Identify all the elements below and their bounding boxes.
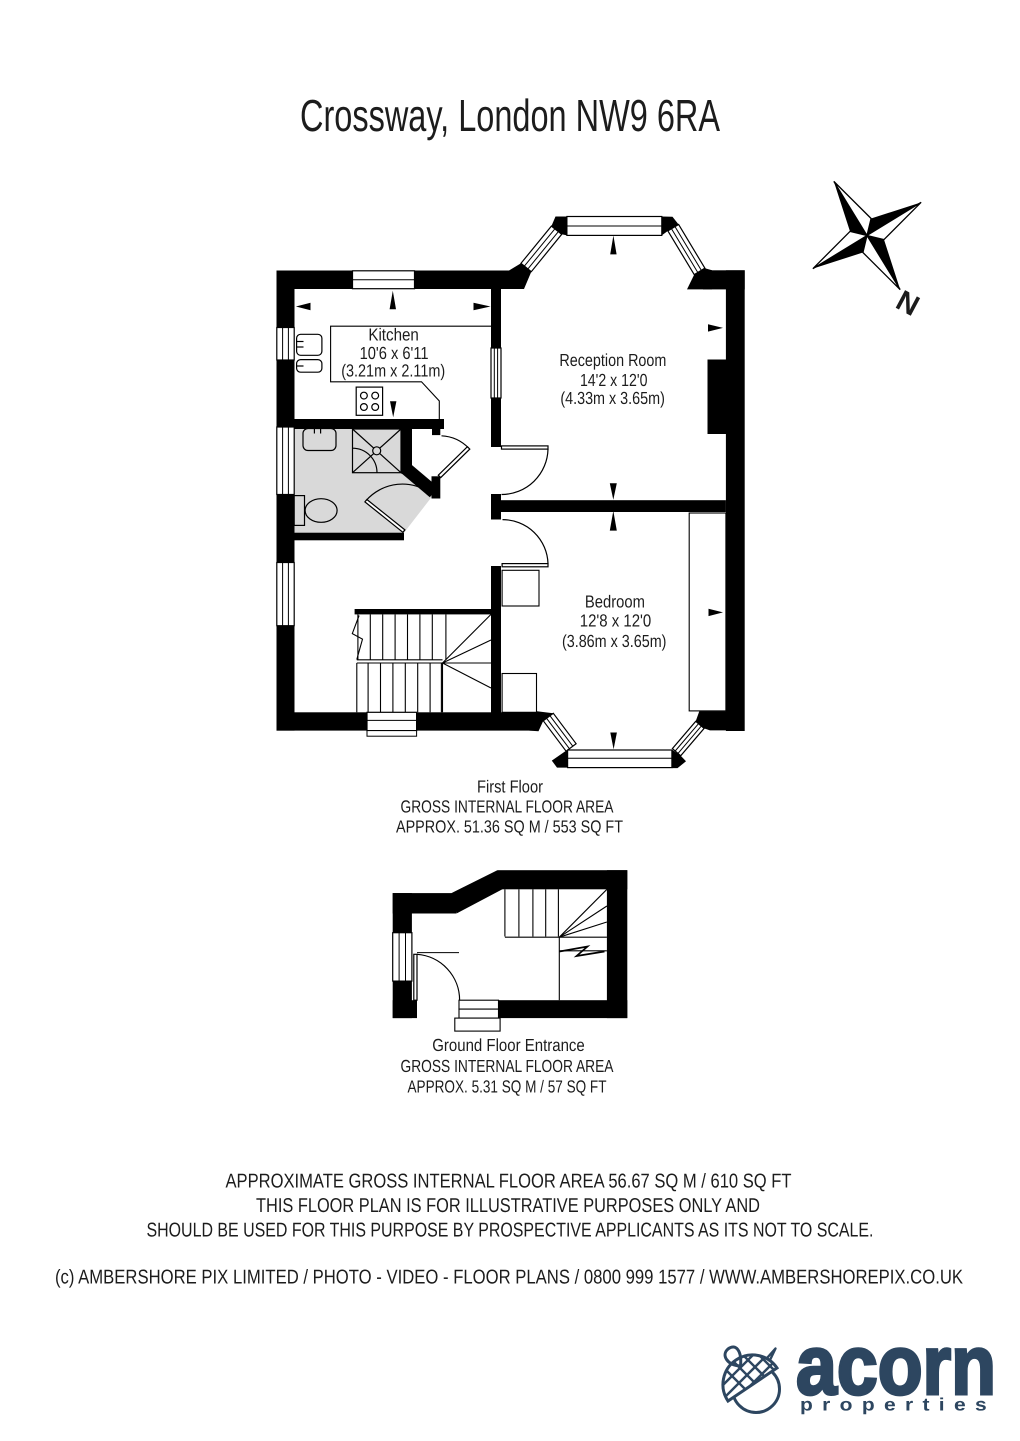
svg-text:Reception Room: Reception Room	[559, 350, 666, 370]
svg-text:14'2 x 12'0: 14'2 x 12'0	[580, 370, 648, 390]
svg-text:APPROX. 51.36 SQ M / 553 SQ FT: APPROX. 51.36 SQ M / 553 SQ FT	[396, 817, 623, 837]
svg-text:THIS FLOOR PLAN IS FOR ILLUSTR: THIS FLOOR PLAN IS FOR ILLUSTRATIVE PURP…	[256, 1195, 760, 1217]
svg-text:(4.33m x 3.65m): (4.33m x 3.65m)	[560, 388, 665, 408]
svg-text:First Floor: First Floor	[477, 777, 543, 797]
svg-text:(3.21m x 2.11m): (3.21m x 2.11m)	[341, 361, 445, 381]
svg-text:SHOULD BE USED FOR THIS PURPOS: SHOULD BE USED FOR THIS PURPOSE BY PROSP…	[147, 1219, 874, 1241]
svg-text:properties: properties	[800, 1395, 996, 1415]
svg-text:(c) AMBERSHORE PIX LIMITED / P: (c) AMBERSHORE PIX LIMITED / PHOTO - VID…	[55, 1266, 964, 1288]
svg-text:APPROXIMATE GROSS INTERNAL FLO: APPROXIMATE GROSS INTERNAL FLOOR AREA 56…	[226, 1171, 792, 1193]
svg-text:Crossway, London NW9 6RA: Crossway, London NW9 6RA	[300, 90, 720, 141]
svg-text:Kitchen: Kitchen	[368, 324, 419, 344]
svg-text:Ground Floor Entrance: Ground Floor Entrance	[432, 1035, 585, 1055]
svg-text:N: N	[891, 285, 925, 323]
svg-text:GROSS INTERNAL FLOOR AREA: GROSS INTERNAL FLOOR AREA	[401, 1056, 614, 1076]
svg-text:GROSS INTERNAL FLOOR AREA: GROSS INTERNAL FLOOR AREA	[401, 797, 614, 817]
svg-text:APPROX. 5.31 SQ M / 57 SQ FT: APPROX. 5.31 SQ M / 57 SQ FT	[408, 1077, 607, 1097]
svg-text:12'8 x 12'0: 12'8 x 12'0	[580, 610, 652, 630]
svg-text:(3.86m x 3.65m): (3.86m x 3.65m)	[562, 631, 667, 651]
svg-text:Bedroom: Bedroom	[585, 591, 645, 611]
